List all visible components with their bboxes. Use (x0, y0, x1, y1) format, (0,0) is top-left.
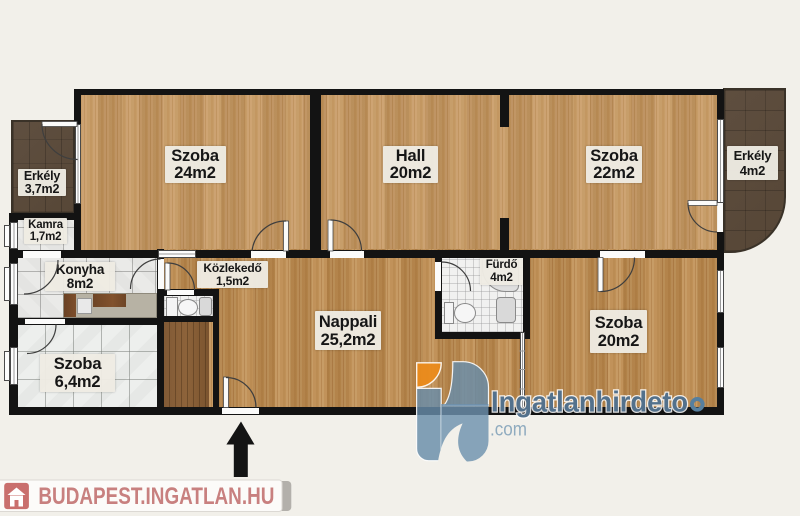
svg-text:BUDAPEST.INGATLAN.HU: BUDAPEST.INGATLAN.HU (38, 483, 274, 510)
svg-text:Ingatlanhirdeto: Ingatlanhirdeto (491, 387, 688, 419)
svg-text:.com: .com (490, 420, 527, 441)
